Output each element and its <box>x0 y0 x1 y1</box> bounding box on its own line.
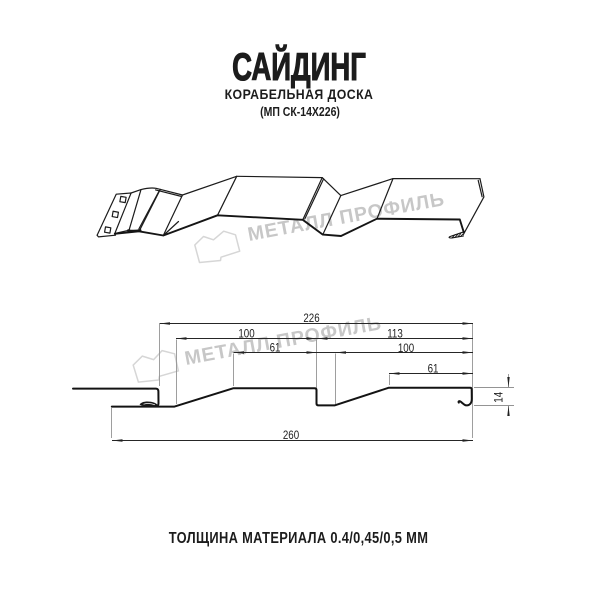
svg-text:100: 100 <box>238 328 254 341</box>
svg-text:(МП СК-14Х226): (МП СК-14Х226) <box>260 106 340 119</box>
svg-text:260: 260 <box>283 429 299 442</box>
svg-text:КОРАБЕЛЬНАЯ ДОСКА: КОРАБЕЛЬНАЯ ДОСКА <box>225 86 374 102</box>
svg-text:226: 226 <box>303 312 319 325</box>
svg-text:100: 100 <box>398 342 414 355</box>
svg-text:14: 14 <box>493 392 506 403</box>
svg-text:113: 113 <box>387 328 403 341</box>
svg-text:61: 61 <box>270 342 281 355</box>
svg-text:САЙДИНГ: САЙДИНГ <box>232 44 366 89</box>
svg-text:61: 61 <box>428 363 439 376</box>
svg-text:ТОЛЩИНА МАТЕРИАЛА 0.4/0,45/0,5: ТОЛЩИНА МАТЕРИАЛА 0.4/0,45/0,5 ММ <box>169 530 429 547</box>
